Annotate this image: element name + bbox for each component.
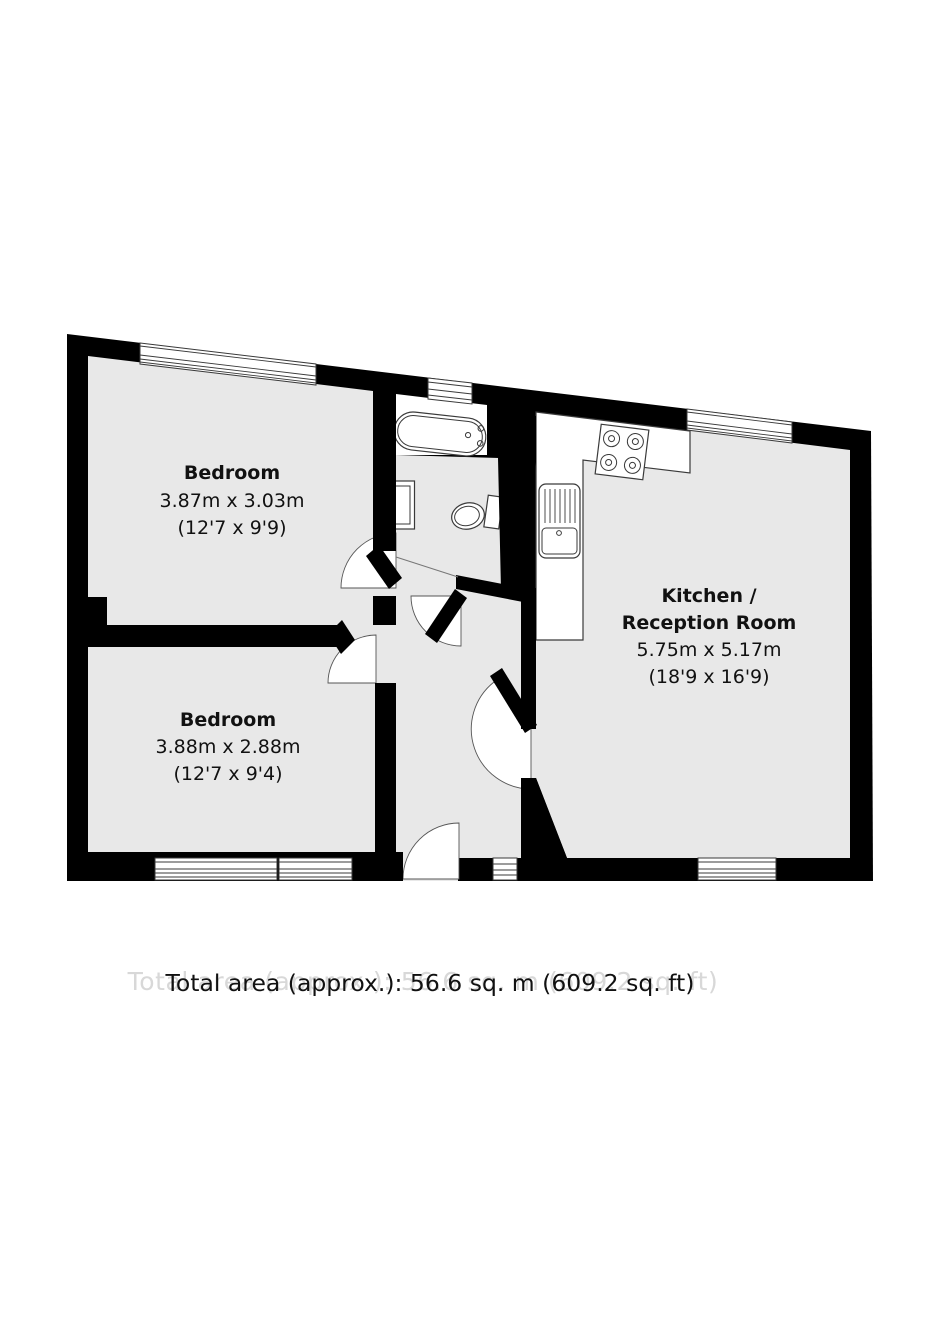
entrance-sidelight-window: [493, 858, 517, 880]
bedroom-1-right-wall: [373, 389, 396, 551]
kitchen-name-line1: Kitchen /: [661, 585, 756, 607]
bedroom-divider-wall: [88, 625, 345, 645]
bedroom-2-window-left: [155, 858, 277, 880]
left-wall-step: [88, 597, 107, 625]
total-area-text: Total area (approx.): 56.6 sq. m (609.2 …: [165, 969, 695, 997]
bedroom-1-name: Bedroom: [184, 462, 280, 484]
kitchen-sink-drainer: [539, 484, 580, 558]
bedroom-2-imperial: (12'7 x 9'4): [173, 763, 282, 785]
kitchen-bottom-window: [698, 858, 776, 880]
bedroom-2-window-right: [279, 858, 352, 880]
kitchen-imperial: (18'9 x 16'9): [648, 666, 769, 688]
bedroom-2-right-wall: [375, 683, 396, 854]
bedroom-2-metric: 3.88m x 2.88m: [156, 736, 301, 758]
bedroom-2-name: Bedroom: [180, 709, 276, 731]
floorplan-page: Bedroom 3.87m x 3.03m (12'7 x 9'9) Bedro…: [0, 0, 940, 1329]
kitchen-metric: 5.75m x 5.17m: [637, 639, 782, 661]
bedroom-1-metric: 3.87m x 3.03m: [160, 490, 305, 512]
bedroom-2-wall-bottom-stub: [373, 852, 403, 881]
bathroom-window: [428, 378, 472, 404]
bedroom-1-imperial: (12'7 x 9'9): [177, 517, 286, 539]
floorplan-drawing: Bedroom 3.87m x 3.03m (12'7 x 9'9) Bedro…: [0, 0, 940, 1329]
hob-4-burner: [595, 424, 649, 479]
kitchen-name-line2: Reception Room: [622, 612, 797, 634]
